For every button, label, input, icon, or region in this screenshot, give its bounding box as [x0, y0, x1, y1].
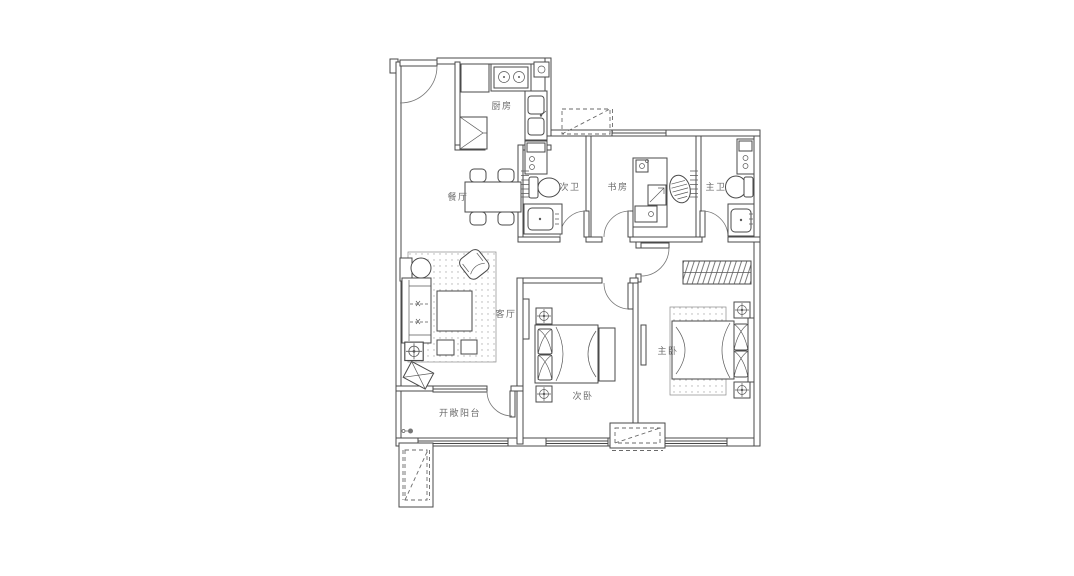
room-label-guest-bath: 次卫: [559, 181, 580, 192]
room-label-master-bedroom: 主卧: [657, 345, 678, 356]
nightstand-icon: [734, 302, 750, 318]
fridge-icon: [460, 117, 487, 149]
ac-platform-left: [399, 443, 433, 507]
room-label-kitchen: 厨房: [491, 100, 512, 111]
bathroom-sink-icon: [524, 204, 562, 234]
bathroom-sink-icon: [728, 204, 754, 236]
window-master-bottom: [665, 438, 727, 446]
kitchen-cabinet: [461, 64, 489, 92]
guest-bath-door: [560, 211, 589, 237]
entry-door: [400, 60, 437, 103]
window-living-balcony: [433, 386, 487, 392]
tilted-cabinet-icon: [403, 361, 434, 389]
nightstand-icon: [536, 308, 552, 324]
nightstand-icon: [536, 386, 552, 402]
wardrobe-icon: [683, 261, 751, 284]
washing-machine-icon: [525, 141, 547, 174]
plant-stand-icon: [405, 342, 423, 360]
floorplan-drawing: 厨房 餐厅 次卫 书房 主卫 客厅 次卧 主卧 开敞阳台: [0, 0, 1074, 576]
master-bedroom-door: [641, 243, 669, 276]
coffee-table-icon: [437, 291, 472, 331]
room-label-living: 客厅: [495, 308, 516, 319]
sofa-icon: [402, 278, 431, 343]
tv-panel: [641, 325, 646, 365]
toilet-icon: [529, 177, 560, 198]
room-label-balcony: 开敞阳台: [439, 407, 481, 418]
dining-table-icon: [465, 169, 521, 225]
toilet-icon: [726, 176, 754, 198]
floorplan-canvas: 厨房 餐厅 次卫 书房 主卫 客厅 次卧 主卧 开敞阳台: [0, 0, 1074, 576]
desk-icon: [633, 158, 667, 227]
bedroom2-door: [604, 283, 633, 309]
study-door: [604, 211, 633, 237]
nightstand-icon: [734, 382, 750, 398]
room-label-master-bath: 主卫: [705, 181, 726, 192]
balcony-door: [487, 391, 515, 417]
window-study-top: [612, 130, 666, 136]
bed-icon: [535, 325, 615, 383]
room-label-second-bedroom: 次卧: [572, 390, 593, 401]
pouf-icon: [461, 340, 477, 354]
tv-panel: [523, 299, 529, 339]
water-heater-icon: [534, 62, 549, 77]
room-label-study: 书房: [607, 181, 628, 192]
room-label-dining: 餐厅: [447, 191, 468, 202]
stove-icon: [491, 64, 531, 91]
office-chair-icon: [667, 173, 694, 205]
ac-platform-center: [610, 423, 665, 451]
bed-icon: [672, 318, 754, 382]
master-bath-door: [700, 211, 728, 237]
kitchen-sink-icon: [525, 91, 547, 140]
pouf-icon: [437, 340, 454, 355]
window-bedroom2-bottom: [546, 438, 608, 446]
laundry-cabinet-icon: [737, 139, 754, 174]
floor-drain-icon: [402, 429, 413, 434]
